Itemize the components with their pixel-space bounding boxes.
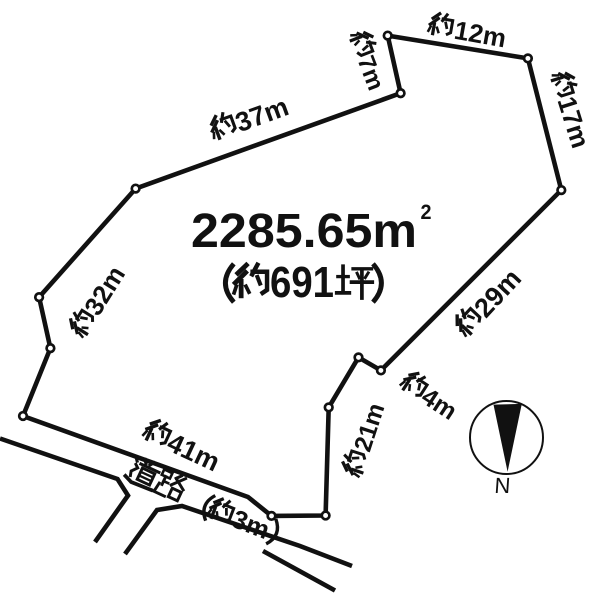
svg-text:N: N — [494, 473, 512, 498]
svg-text:2285.65m: 2285.65m — [191, 205, 417, 258]
svg-text:2: 2 — [421, 201, 432, 224]
svg-text:691: 691 — [270, 258, 334, 307]
